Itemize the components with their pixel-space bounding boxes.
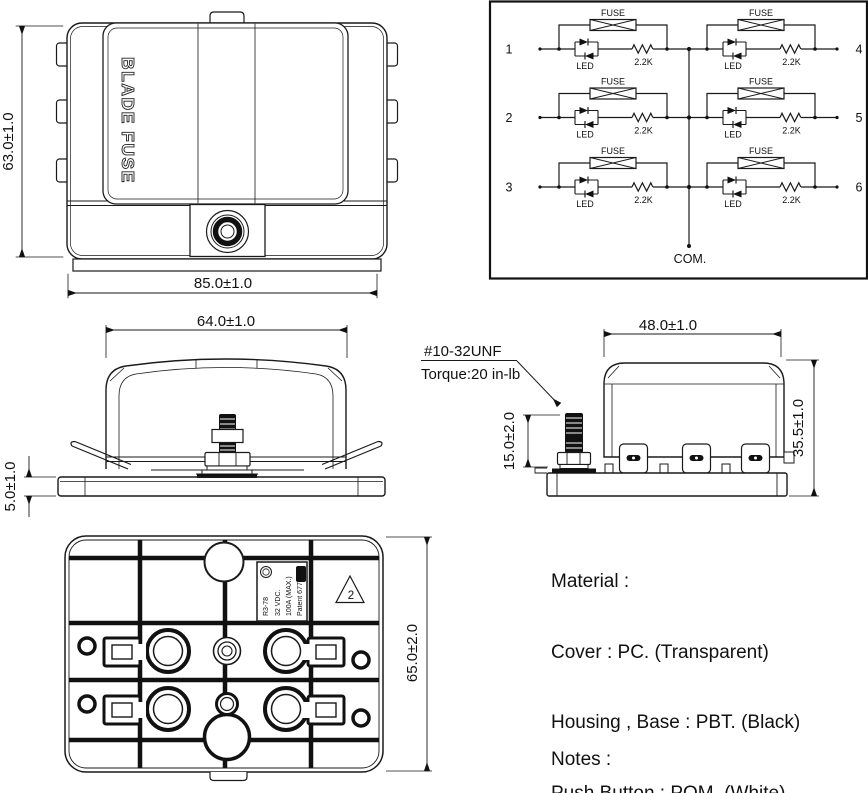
terminal-2: 2	[506, 111, 513, 125]
technical-drawing-sheet: { "front_view": { "cover_text": "BLADE F…	[0, 0, 868, 793]
front-mount-stud	[190, 205, 265, 257]
side-right-dim-height: 35.5±1.0	[786, 360, 819, 496]
svg-text:85.0±1.0: 85.0±1.0	[194, 275, 252, 292]
resistor-value-label: 2.2K	[782, 57, 801, 67]
svg-text:64.0±1.0: 64.0±1.0	[197, 313, 255, 330]
led-symbol	[723, 107, 746, 128]
resistor-value-label: 2.2K	[782, 195, 801, 205]
bottom-dim-height: 65.0±2.0	[386, 537, 432, 771]
terminal-4: 4	[856, 43, 863, 57]
svg-text:5.0±1.0: 5.0±1.0	[2, 462, 19, 512]
led-label: LED	[576, 130, 594, 140]
schematic-fuse-unit: FUSE LED 2.2K	[705, 8, 817, 71]
front-dim-width: 85.0±1.0	[68, 274, 377, 298]
material-line: Cover : PC. (Transparent)	[551, 641, 800, 665]
svg-text:R3-78: R3-78	[263, 597, 270, 616]
schematic-fuse-unit: FUSE LED 2.2K	[705, 77, 817, 140]
bottom-view: R3-78 32 VDC. 100A (MAX.) Patent 6775148…	[65, 536, 432, 781]
schematic-fuse-unit: FUSE LED 2.2K	[557, 146, 669, 209]
schematic: COM. 1 2 3 4 5 6 FUSE LED 2.2K	[490, 2, 867, 279]
resistor-symbol	[780, 45, 801, 53]
front-dim-height: 63.0±1.0	[0, 26, 63, 257]
svg-text:Torque:20 in-lb: Torque:20 in-lb	[421, 366, 520, 383]
cover-embossed-text: BLADE FUSE	[118, 57, 138, 184]
rating-label: R3-78 32 VDC. 100A (MAX.) Patent 6775148	[257, 562, 307, 621]
thread-callout: #10-32UNF Torque:20 in-lb	[421, 343, 559, 405]
led-label: LED	[576, 199, 594, 209]
side-front-dim-base: 5.0±1.0	[2, 456, 56, 517]
resistor-value-label: 2.2K	[634, 57, 653, 67]
led-label: LED	[724, 199, 742, 209]
terminal-5: 5	[856, 111, 863, 125]
svg-text:15.0±2.0: 15.0±2.0	[501, 412, 518, 470]
fuse-label: FUSE	[749, 8, 773, 18]
svg-text:63.0±1.0: 63.0±1.0	[0, 112, 17, 170]
terminal-1: 1	[506, 43, 513, 57]
led-symbol	[723, 177, 746, 198]
led-symbol	[723, 39, 746, 60]
led-symbol	[575, 177, 598, 198]
svg-text:32 VDC.: 32 VDC.	[275, 589, 282, 616]
notes-block: Notes : 1. Rating 100A max. tested by 4 …	[551, 701, 805, 793]
led-symbol	[575, 39, 598, 60]
svg-text:Patent 6775148: Patent 6775148	[297, 566, 304, 616]
side-view-front: 64.0±1.0 5.0±1.0	[2, 313, 385, 517]
svg-text:100A (MAX.): 100A (MAX.)	[286, 576, 293, 616]
svg-text:48.0±1.0: 48.0±1.0	[639, 317, 697, 334]
led-label: LED	[576, 61, 594, 71]
resistor-symbol	[780, 183, 801, 191]
led-label: LED	[724, 130, 742, 140]
front-view: BLADE FUSE 63.0±1.0 85.0±1.0	[0, 12, 398, 298]
fuse-label: FUSE	[601, 77, 625, 87]
side-right-terminal-tabs	[605, 444, 770, 473]
svg-text:#10-32UNF: #10-32UNF	[424, 343, 502, 360]
side-right-stud	[552, 413, 596, 473]
svg-text:2: 2	[348, 590, 354, 602]
schematic-fuse-unit: FUSE LED 2.2K	[557, 8, 669, 71]
fuse-label: FUSE	[601, 146, 625, 156]
side-view-right: #10-32UNF Torque:20 in-lb 48.0±1.0	[421, 317, 819, 496]
terminal-6: 6	[856, 181, 863, 195]
svg-text:65.0±2.0: 65.0±2.0	[404, 624, 421, 682]
fuse-label: FUSE	[749, 77, 773, 87]
resistor-value-label: 2.2K	[634, 126, 653, 136]
schematic-fuse-unit: FUSE LED 2.2K	[557, 77, 669, 140]
com-label: COM.	[674, 252, 707, 266]
fuse-label: FUSE	[749, 146, 773, 156]
material-title: Material :	[551, 570, 800, 594]
led-symbol	[575, 107, 598, 128]
schematic-fuse-unit: FUSE LED 2.2K	[705, 146, 817, 209]
resistor-symbol	[780, 113, 801, 121]
side-right-dim-stud: 15.0±2.0	[501, 412, 560, 470]
resistor-symbol	[632, 113, 653, 121]
resistor-value-label: 2.2K	[782, 126, 801, 136]
led-label: LED	[724, 61, 742, 71]
resistor-value-label: 2.2K	[634, 195, 653, 205]
resistor-symbol	[632, 45, 653, 53]
resistor-symbol	[632, 183, 653, 191]
svg-text:35.5±1.0: 35.5±1.0	[790, 399, 807, 457]
fuse-label: FUSE	[601, 8, 625, 18]
side-front-dim-width: 64.0±1.0	[106, 313, 347, 358]
notes-title: Notes :	[551, 748, 805, 772]
side-right-dim-width: 48.0±1.0	[604, 317, 781, 357]
terminal-3: 3	[506, 181, 513, 195]
